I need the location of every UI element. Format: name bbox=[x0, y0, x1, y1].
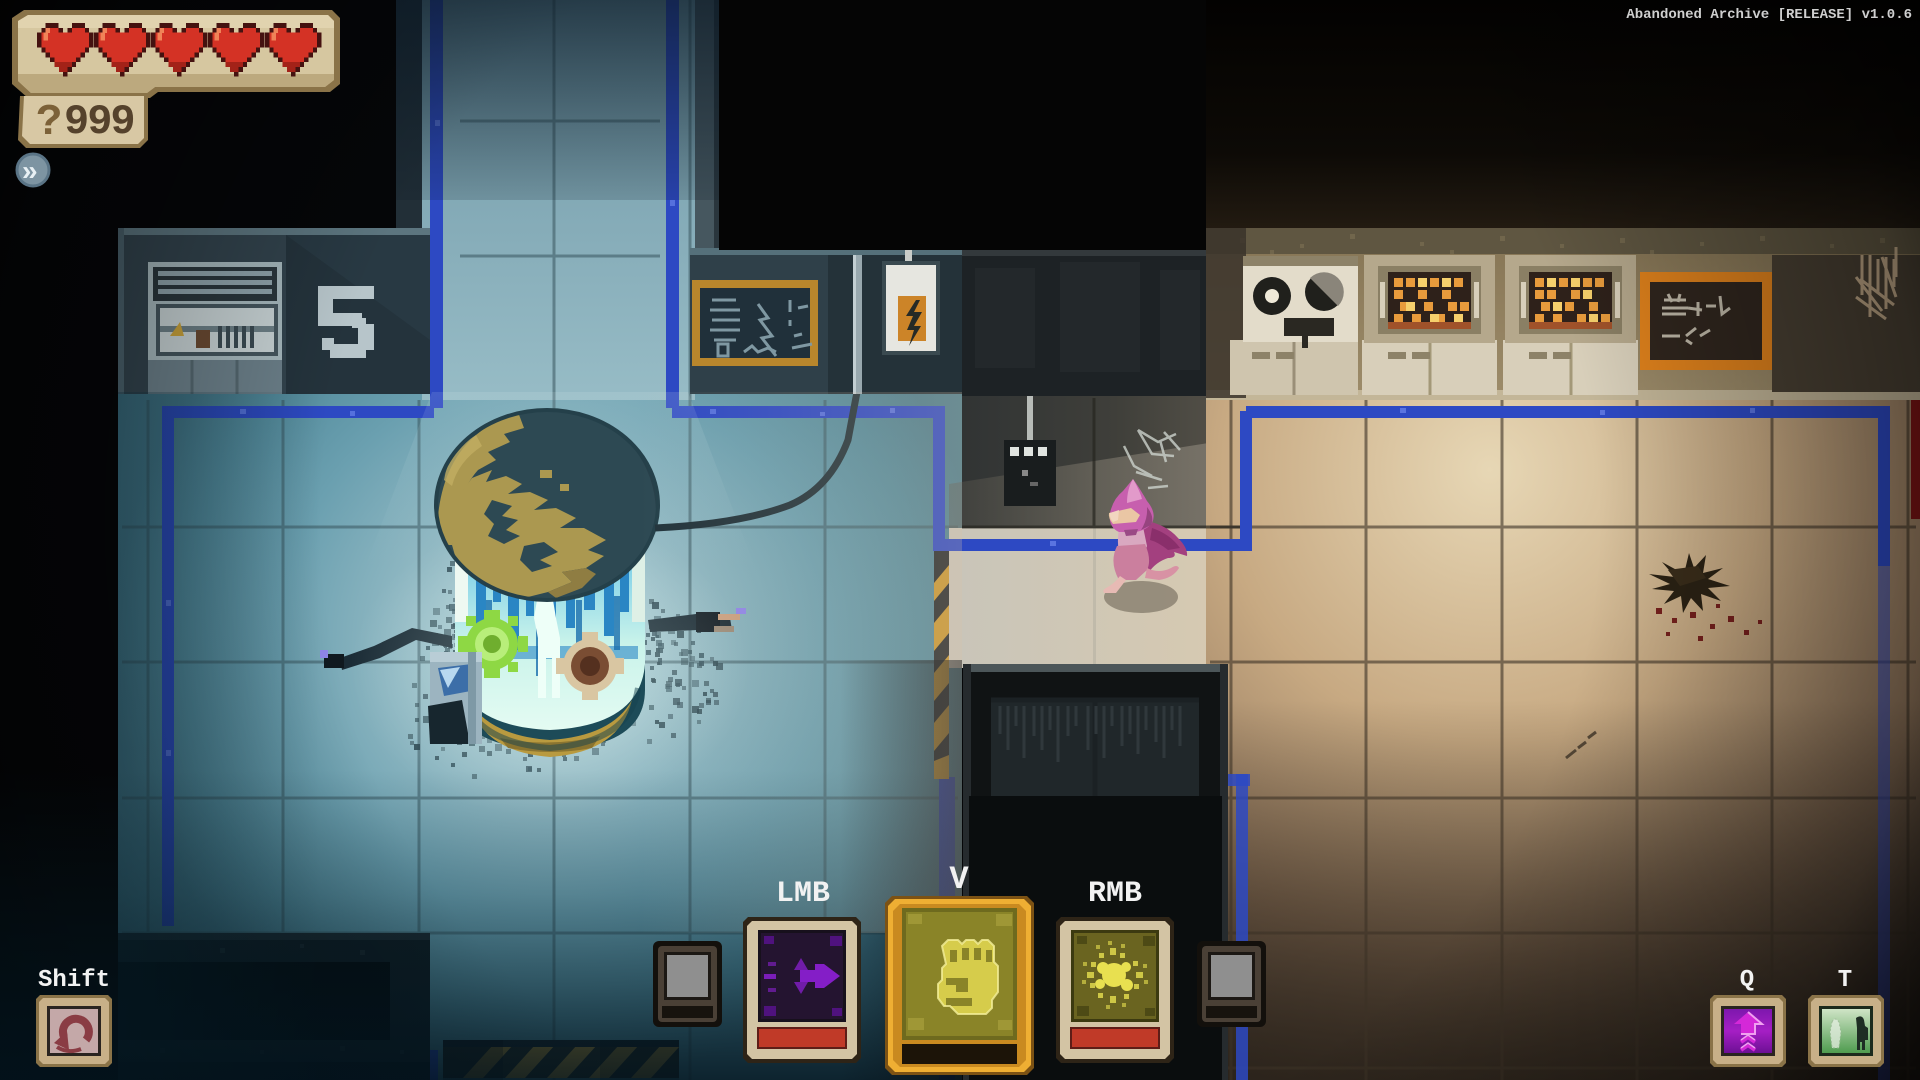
svg-text:RMB: RMB bbox=[1088, 877, 1142, 911]
svg-text:LMB: LMB bbox=[776, 877, 830, 911]
svg-text:»: » bbox=[22, 155, 38, 186]
svg-text:Shift: Shift bbox=[38, 967, 110, 994]
svg-text:V: V bbox=[949, 861, 969, 898]
svg-text:999: 999 bbox=[64, 98, 134, 146]
svg-text:T: T bbox=[1838, 967, 1852, 994]
svg-text:Q: Q bbox=[1740, 967, 1754, 994]
svg-text:?: ? bbox=[36, 98, 62, 148]
svg-text:Abandoned Archive [RELEASE] v1: Abandoned Archive [RELEASE] v1.0.6 bbox=[1626, 7, 1912, 23]
